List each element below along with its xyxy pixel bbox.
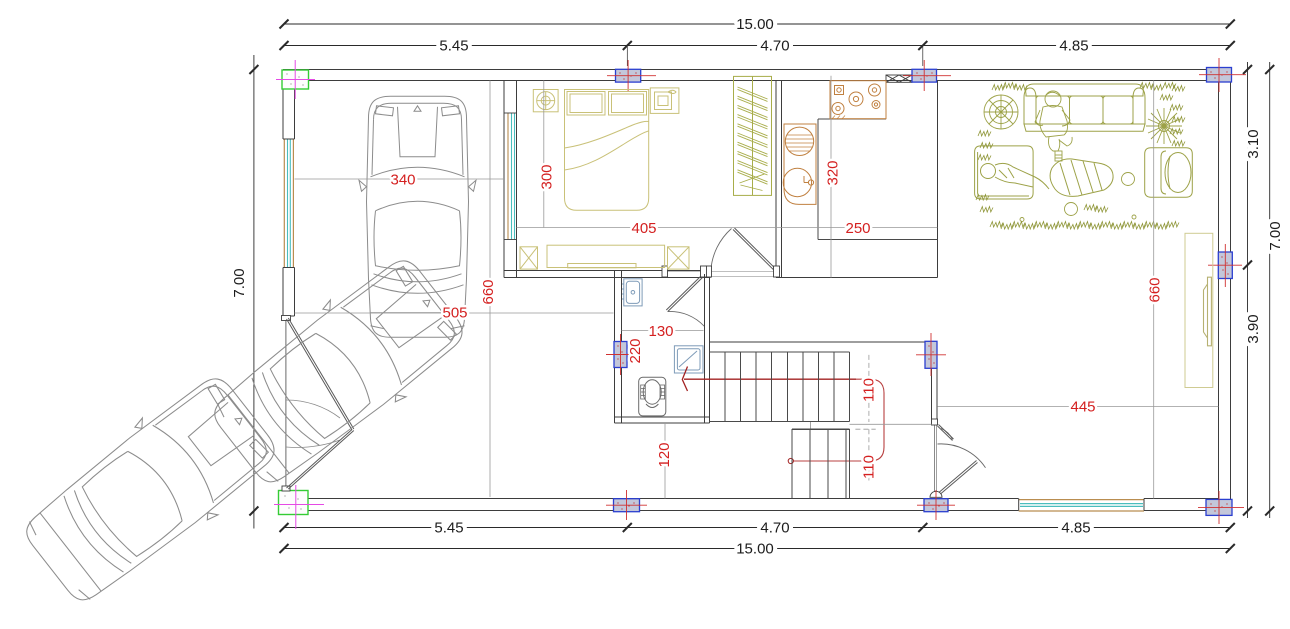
svg-text:3.90: 3.90 <box>1245 314 1262 343</box>
svg-text:220: 220 <box>627 338 644 363</box>
svg-text:300: 300 <box>539 164 556 189</box>
svg-text:110: 110 <box>861 378 878 402</box>
svg-text:660: 660 <box>480 279 497 304</box>
svg-text:15.00: 15.00 <box>736 16 774 33</box>
svg-text:340: 340 <box>390 172 415 189</box>
svg-text:250: 250 <box>845 220 870 237</box>
svg-text:4.70: 4.70 <box>760 520 789 537</box>
svg-text:660: 660 <box>1147 277 1164 302</box>
svg-text:130: 130 <box>648 323 673 340</box>
svg-text:505: 505 <box>442 305 467 322</box>
svg-text:7.00: 7.00 <box>1267 221 1284 250</box>
svg-text:320: 320 <box>825 160 842 185</box>
svg-text:5.45: 5.45 <box>439 38 468 55</box>
svg-text:4.85: 4.85 <box>1059 38 1088 55</box>
svg-text:120: 120 <box>656 442 673 467</box>
svg-text:445: 445 <box>1070 399 1095 416</box>
svg-text:7.00: 7.00 <box>231 268 248 297</box>
svg-text:4.70: 4.70 <box>760 38 789 55</box>
svg-text:110: 110 <box>861 455 878 479</box>
svg-text:4.85: 4.85 <box>1061 520 1090 537</box>
svg-text:5.45: 5.45 <box>434 520 463 537</box>
svg-text:15.00: 15.00 <box>736 541 774 558</box>
svg-text:405: 405 <box>631 220 656 237</box>
svg-text:3.10: 3.10 <box>1245 129 1262 158</box>
